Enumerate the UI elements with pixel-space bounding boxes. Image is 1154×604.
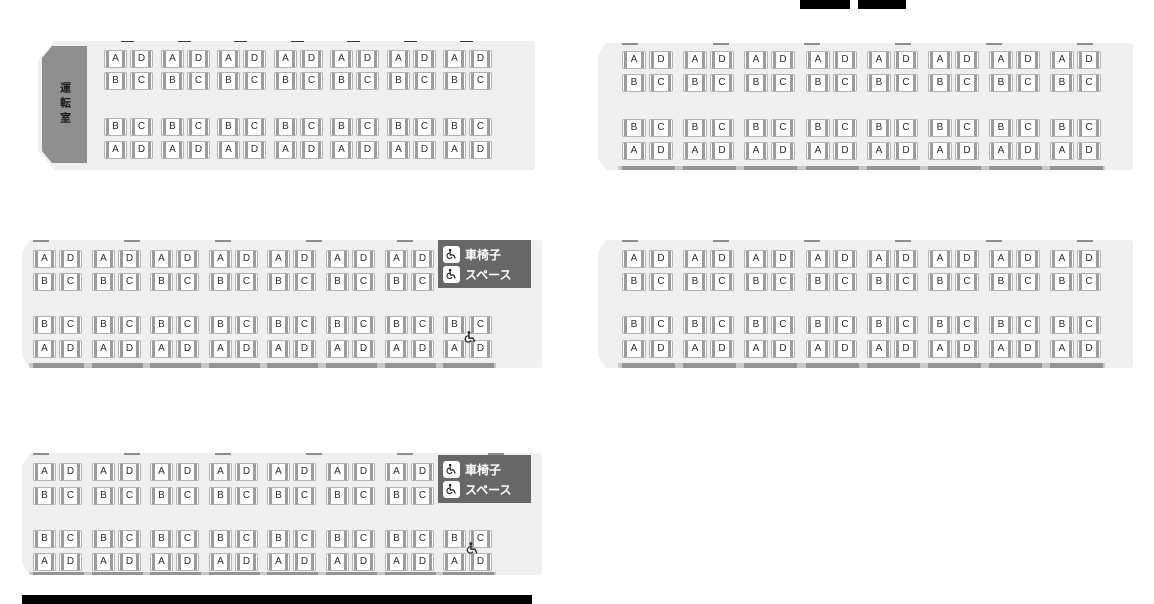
seat-A[interactable]: A — [867, 250, 891, 268]
seat-A[interactable]: A — [150, 250, 173, 268]
seat-A[interactable]: A — [326, 340, 349, 358]
seat-C[interactable]: C — [293, 316, 316, 334]
seat-B[interactable]: B — [806, 273, 830, 291]
seat-D[interactable]: D — [176, 463, 199, 481]
seat-D[interactable]: D — [955, 51, 979, 69]
seat-D[interactable]: D — [130, 50, 153, 68]
seat-C[interactable]: C — [243, 118, 266, 136]
seat-D[interactable]: D — [235, 340, 258, 358]
seat-D[interactable]: D — [59, 463, 82, 481]
seat-A[interactable]: A — [92, 553, 115, 571]
seat-D[interactable]: D — [293, 553, 316, 571]
seat-A[interactable]: A — [928, 250, 952, 268]
seat-B[interactable]: B — [326, 273, 349, 291]
seat-A[interactable]: A — [744, 51, 768, 69]
seat-C[interactable]: C — [59, 273, 82, 291]
seat-A[interactable]: A — [683, 142, 707, 160]
seat-C[interactable]: C — [59, 530, 82, 548]
seat-A[interactable]: A — [806, 250, 830, 268]
seat-D[interactable]: D — [833, 250, 857, 268]
seat-C[interactable]: C — [235, 487, 258, 505]
seat-A[interactable]: A — [326, 250, 349, 268]
seat-B[interactable]: B — [683, 316, 707, 334]
seat-C[interactable]: C — [118, 530, 141, 548]
seat-C[interactable]: C — [649, 273, 673, 291]
seat-B[interactable]: B — [443, 530, 466, 548]
seat-A[interactable]: A — [744, 142, 768, 160]
seat-B[interactable]: B — [867, 119, 891, 137]
seat-A[interactable]: A — [326, 463, 349, 481]
seat-B[interactable]: B — [209, 316, 232, 334]
seat-C[interactable]: C — [130, 118, 153, 136]
seat-D[interactable]: D — [352, 340, 375, 358]
seat-C[interactable]: C — [894, 119, 918, 137]
seat-C[interactable]: C — [187, 72, 210, 90]
seat-B[interactable]: B — [33, 530, 56, 548]
seat-A[interactable]: A — [92, 463, 115, 481]
seat-B[interactable]: B — [867, 74, 891, 92]
seat-C[interactable]: C — [352, 530, 375, 548]
seat-B[interactable]: B — [989, 74, 1013, 92]
seat-C[interactable]: C — [243, 72, 266, 90]
seat-A[interactable]: A — [622, 250, 646, 268]
seat-D[interactable]: D — [352, 553, 375, 571]
seat-A[interactable]: A — [161, 50, 184, 68]
seat-A[interactable]: A — [387, 141, 410, 159]
seat-C[interactable]: C — [59, 316, 82, 334]
seat-D[interactable]: D — [469, 50, 492, 68]
seat-B[interactable]: B — [683, 273, 707, 291]
seat-C[interactable]: C — [293, 530, 316, 548]
seat-D[interactable]: D — [413, 50, 436, 68]
seat-D[interactable]: D — [771, 51, 795, 69]
seat-C[interactable]: C — [955, 74, 979, 92]
seat-B[interactable]: B — [443, 118, 466, 136]
seat-A[interactable]: A — [806, 51, 830, 69]
seat-A[interactable]: A — [1050, 51, 1074, 69]
seat-B[interactable]: B — [150, 487, 173, 505]
seat-A[interactable]: A — [33, 463, 56, 481]
seat-B[interactable]: B — [161, 72, 184, 90]
seat-A[interactable]: A — [267, 250, 290, 268]
seat-D[interactable]: D — [293, 340, 316, 358]
seat-C[interactable]: C — [352, 316, 375, 334]
seat-C[interactable]: C — [176, 487, 199, 505]
seat-A[interactable]: A — [209, 463, 232, 481]
seat-A[interactable]: A — [867, 340, 891, 358]
seat-A[interactable]: A — [330, 50, 353, 68]
seat-C[interactable]: C — [710, 74, 734, 92]
seat-B[interactable]: B — [683, 119, 707, 137]
seat-A[interactable]: A — [443, 553, 466, 571]
seat-D[interactable]: D — [411, 250, 434, 268]
seat-A[interactable]: A — [92, 340, 115, 358]
seat-D[interactable]: D — [59, 250, 82, 268]
seat-D[interactable]: D — [771, 142, 795, 160]
seat-A[interactable]: A — [928, 51, 952, 69]
seat-D[interactable]: D — [235, 250, 258, 268]
seat-C[interactable]: C — [649, 119, 673, 137]
seat-B[interactable]: B — [744, 316, 768, 334]
seat-B[interactable]: B — [274, 118, 297, 136]
seat-B[interactable]: B — [622, 74, 646, 92]
seat-D[interactable]: D — [411, 553, 434, 571]
seat-A[interactable]: A — [150, 463, 173, 481]
seat-B[interactable]: B — [744, 74, 768, 92]
seat-B[interactable]: B — [326, 487, 349, 505]
seat-D[interactable]: D — [356, 50, 379, 68]
seat-B[interactable]: B — [744, 119, 768, 137]
seat-A[interactable]: A — [209, 340, 232, 358]
seat-D[interactable]: D — [649, 142, 673, 160]
seat-C[interactable]: C — [413, 118, 436, 136]
seat-C[interactable]: C — [1077, 316, 1101, 334]
seat-D[interactable]: D — [955, 340, 979, 358]
seat-B[interactable]: B — [1050, 74, 1074, 92]
seat-B[interactable]: B — [330, 118, 353, 136]
seat-A[interactable]: A — [274, 141, 297, 159]
seat-C[interactable]: C — [894, 74, 918, 92]
seat-D[interactable]: D — [118, 463, 141, 481]
seat-B[interactable]: B — [744, 273, 768, 291]
seat-A[interactable]: A — [387, 50, 410, 68]
seat-B[interactable]: B — [443, 72, 466, 90]
seat-D[interactable]: D — [411, 463, 434, 481]
seat-A[interactable]: A — [867, 142, 891, 160]
seat-A[interactable]: A — [1050, 340, 1074, 358]
seat-A[interactable]: A — [274, 50, 297, 68]
seat-D[interactable]: D — [187, 50, 210, 68]
seat-C[interactable]: C — [356, 72, 379, 90]
seat-C[interactable]: C — [356, 118, 379, 136]
seat-B[interactable]: B — [806, 74, 830, 92]
seat-A[interactable]: A — [33, 553, 56, 571]
seat-C[interactable]: C — [411, 530, 434, 548]
seat-B[interactable]: B — [385, 273, 408, 291]
seat-B[interactable]: B — [104, 72, 127, 90]
seat-C[interactable]: C — [833, 273, 857, 291]
seat-D[interactable]: D — [710, 250, 734, 268]
seat-A[interactable]: A — [330, 141, 353, 159]
seat-B[interactable]: B — [92, 530, 115, 548]
seat-D[interactable]: D — [894, 51, 918, 69]
seat-C[interactable]: C — [293, 487, 316, 505]
seat-B[interactable]: B — [33, 273, 56, 291]
seat-A[interactable]: A — [806, 142, 830, 160]
seat-C[interactable]: C — [352, 273, 375, 291]
seat-A[interactable]: A — [622, 142, 646, 160]
seat-C[interactable]: C — [1016, 74, 1040, 92]
seat-D[interactable]: D — [300, 141, 323, 159]
seat-letter: C — [1024, 78, 1031, 88]
seat-A[interactable]: A — [989, 340, 1013, 358]
seat-B[interactable]: B — [867, 273, 891, 291]
seat-A[interactable]: A — [267, 340, 290, 358]
seat-D[interactable]: D — [300, 50, 323, 68]
seat-C[interactable]: C — [955, 316, 979, 334]
seat-B[interactable]: B — [330, 72, 353, 90]
seat-A[interactable]: A — [33, 340, 56, 358]
seat-A[interactable]: A — [744, 340, 768, 358]
seat-D[interactable]: D — [771, 250, 795, 268]
seat-C[interactable]: C — [118, 273, 141, 291]
seat-C[interactable]: C — [771, 316, 795, 334]
seat-C[interactable]: C — [235, 316, 258, 334]
seat-D[interactable]: D — [130, 141, 153, 159]
seat-A[interactable]: A — [683, 250, 707, 268]
seat-B[interactable]: B — [267, 273, 290, 291]
seat-C[interactable]: C — [352, 487, 375, 505]
seat-D[interactable]: D — [469, 141, 492, 159]
seat-D[interactable]: D — [176, 553, 199, 571]
seat-A[interactable]: A — [217, 141, 240, 159]
seat-B[interactable]: B — [209, 273, 232, 291]
seat-C[interactable]: C — [1077, 273, 1101, 291]
seat-B[interactable]: B — [928, 316, 952, 334]
seat-B[interactable]: B — [217, 72, 240, 90]
seat-A[interactable]: A — [989, 250, 1013, 268]
seat-B[interactable]: B — [989, 119, 1013, 137]
seat-D[interactable]: D — [187, 141, 210, 159]
seat-B[interactable]: B — [33, 316, 56, 334]
seat-B[interactable]: B — [92, 316, 115, 334]
seat-C[interactable]: C — [118, 487, 141, 505]
seat-C[interactable]: C — [411, 487, 434, 505]
seat-C[interactable]: C — [118, 316, 141, 334]
seat-D[interactable]: D — [1077, 51, 1101, 69]
seat-B[interactable]: B — [267, 487, 290, 505]
seat-B[interactable]: B — [806, 316, 830, 334]
seat-A[interactable]: A — [33, 250, 56, 268]
seat-C[interactable]: C — [771, 119, 795, 137]
seat-D[interactable]: D — [1016, 340, 1040, 358]
seat-B[interactable]: B — [209, 487, 232, 505]
seat-D[interactable]: D — [413, 141, 436, 159]
seat-C[interactable]: C — [411, 316, 434, 334]
seat-C[interactable]: C — [411, 273, 434, 291]
seat-A[interactable]: A — [928, 340, 952, 358]
seat-C[interactable]: C — [955, 119, 979, 137]
seat-D[interactable]: D — [235, 463, 258, 481]
seat-C[interactable]: C — [1077, 119, 1101, 137]
seat-B[interactable]: B — [928, 119, 952, 137]
seat-D[interactable]: D — [771, 340, 795, 358]
seat-B[interactable]: B — [683, 74, 707, 92]
seat-D[interactable]: D — [1016, 142, 1040, 160]
seat-A[interactable]: A — [989, 142, 1013, 160]
seat-C[interactable]: C — [894, 316, 918, 334]
seat-B[interactable]: B — [33, 487, 56, 505]
seat-B[interactable]: B — [989, 273, 1013, 291]
seat-B[interactable]: B — [385, 487, 408, 505]
seat-B[interactable]: B — [387, 118, 410, 136]
seat-B[interactable]: B — [161, 118, 184, 136]
seat-B[interactable]: B — [92, 273, 115, 291]
seat-C[interactable]: C — [955, 273, 979, 291]
seat-A[interactable]: A — [161, 141, 184, 159]
seat-D[interactable]: D — [411, 340, 434, 358]
seat-C[interactable]: C — [235, 273, 258, 291]
seat-B[interactable]: B — [622, 273, 646, 291]
seat-B[interactable]: B — [387, 72, 410, 90]
seat-C[interactable]: C — [649, 316, 673, 334]
seat-D[interactable]: D — [1077, 142, 1101, 160]
seat-C[interactable]: C — [413, 72, 436, 90]
seat-A[interactable]: A — [209, 250, 232, 268]
seat-B[interactable]: B — [150, 273, 173, 291]
seat-C[interactable]: C — [130, 72, 153, 90]
seat-D[interactable]: D — [293, 250, 316, 268]
seat-D[interactable]: D — [235, 553, 258, 571]
seat-D[interactable]: D — [649, 250, 673, 268]
seat-A[interactable]: A — [989, 51, 1013, 69]
seat-A[interactable]: A — [622, 340, 646, 358]
seat-C[interactable]: C — [59, 487, 82, 505]
seat-B[interactable]: B — [326, 316, 349, 334]
seat-B[interactable]: B — [806, 119, 830, 137]
seat-D[interactable]: D — [710, 142, 734, 160]
seat-A[interactable]: A — [385, 463, 408, 481]
seat-B[interactable]: B — [622, 119, 646, 137]
seat-D[interactable]: D — [118, 553, 141, 571]
seat-B[interactable]: B — [928, 273, 952, 291]
seat-C[interactable]: C — [300, 72, 323, 90]
seat-C[interactable]: C — [771, 74, 795, 92]
seat-B[interactable]: B — [217, 118, 240, 136]
seat-A[interactable]: A — [683, 51, 707, 69]
seat-C[interactable]: C — [833, 119, 857, 137]
seat-B[interactable]: B — [1050, 273, 1074, 291]
seat-D[interactable]: D — [352, 463, 375, 481]
seat-D[interactable]: D — [59, 340, 82, 358]
seat-A[interactable]: A — [92, 250, 115, 268]
seat-D[interactable]: D — [710, 340, 734, 358]
seat-D[interactable]: D — [894, 340, 918, 358]
seat-A[interactable]: A — [385, 553, 408, 571]
seat-A[interactable]: A — [150, 340, 173, 358]
seat-A[interactable]: A — [385, 340, 408, 358]
seat-C[interactable]: C — [293, 273, 316, 291]
seat-A[interactable]: A — [622, 51, 646, 69]
seat-A[interactable]: A — [1050, 142, 1074, 160]
seat-A[interactable]: A — [443, 50, 466, 68]
seat-B[interactable]: B — [104, 118, 127, 136]
seat-D[interactable]: D — [955, 142, 979, 160]
seat-B[interactable]: B — [150, 316, 173, 334]
seat-A[interactable]: A — [867, 51, 891, 69]
seat-D[interactable]: D — [118, 340, 141, 358]
seat-A[interactable]: A — [209, 553, 232, 571]
seat-B[interactable]: B — [274, 72, 297, 90]
seat-D[interactable]: D — [243, 141, 266, 159]
seat-C[interactable]: C — [710, 273, 734, 291]
seat-C[interactable]: C — [833, 316, 857, 334]
seat-B[interactable]: B — [326, 530, 349, 548]
seat-C[interactable]: C — [894, 273, 918, 291]
seat-D[interactable]: D — [710, 51, 734, 69]
seat-B[interactable]: B — [267, 530, 290, 548]
seat-D[interactable]: D — [176, 250, 199, 268]
seat-C[interactable]: C — [469, 118, 492, 136]
seat-A[interactable]: A — [326, 553, 349, 571]
seat-A[interactable]: A — [683, 340, 707, 358]
seat-D[interactable]: D — [649, 340, 673, 358]
seat-A[interactable]: A — [267, 463, 290, 481]
seat-A[interactable]: A — [104, 141, 127, 159]
seat-D[interactable]: D — [356, 141, 379, 159]
seat-A[interactable]: A — [104, 50, 127, 68]
seat-C[interactable]: C — [469, 72, 492, 90]
seat-C[interactable]: C — [1077, 74, 1101, 92]
seat-B[interactable]: B — [92, 487, 115, 505]
seat-D[interactable]: D — [833, 142, 857, 160]
seat-C[interactable]: C — [649, 74, 673, 92]
seat-C[interactable]: C — [771, 273, 795, 291]
seat-D[interactable]: D — [894, 250, 918, 268]
seat-B[interactable]: B — [385, 530, 408, 548]
seat-D[interactable]: D — [894, 142, 918, 160]
seat-B[interactable]: B — [385, 316, 408, 334]
seat-B[interactable]: B — [622, 316, 646, 334]
seat-D[interactable]: D — [1016, 51, 1040, 69]
seat-C[interactable]: C — [1016, 316, 1040, 334]
seat-D[interactable]: D — [243, 50, 266, 68]
seat-D[interactable]: D — [955, 250, 979, 268]
seat-D[interactable]: D — [176, 340, 199, 358]
seat-D[interactable]: D — [1016, 250, 1040, 268]
seat-D[interactable]: D — [352, 250, 375, 268]
seat-B[interactable]: B — [267, 316, 290, 334]
seat-D[interactable]: D — [833, 51, 857, 69]
seat-B[interactable]: B — [1050, 119, 1074, 137]
seat-A[interactable]: A — [267, 553, 290, 571]
seat-C[interactable]: C — [176, 273, 199, 291]
seat-B[interactable]: B — [150, 530, 173, 548]
seat-D[interactable]: D — [59, 553, 82, 571]
seat-A[interactable]: A — [928, 142, 952, 160]
seat-C[interactable]: C — [1016, 273, 1040, 291]
seat-C[interactable]: C — [176, 530, 199, 548]
seat-A[interactable]: A — [443, 141, 466, 159]
seat-A[interactable]: A — [385, 250, 408, 268]
seat-D[interactable]: D — [1077, 250, 1101, 268]
seat-A[interactable]: A — [217, 50, 240, 68]
seat-B[interactable]: B — [209, 530, 232, 548]
seat-C[interactable]: C — [710, 316, 734, 334]
seat-C[interactable]: C — [710, 119, 734, 137]
seat-C[interactable]: C — [176, 316, 199, 334]
seat-C[interactable]: C — [235, 530, 258, 548]
seat-B[interactable]: B — [867, 316, 891, 334]
seat-letter: D — [841, 55, 848, 65]
seat-D[interactable]: D — [118, 250, 141, 268]
seat-D[interactable]: D — [833, 340, 857, 358]
seat-A[interactable]: A — [1050, 250, 1074, 268]
seat-D[interactable]: D — [649, 51, 673, 69]
seat-B[interactable]: B — [1050, 316, 1074, 334]
seat-C[interactable]: C — [187, 118, 210, 136]
seat-D[interactable]: D — [293, 463, 316, 481]
seat-B[interactable]: B — [989, 316, 1013, 334]
seat-C[interactable]: C — [1016, 119, 1040, 137]
seat-A[interactable]: A — [150, 553, 173, 571]
seat-D[interactable]: D — [1077, 340, 1101, 358]
seat-A[interactable]: A — [744, 250, 768, 268]
seat-A[interactable]: A — [806, 340, 830, 358]
seat-C[interactable]: C — [300, 118, 323, 136]
seat-C[interactable]: C — [833, 74, 857, 92]
seat-B[interactable]: B — [928, 74, 952, 92]
